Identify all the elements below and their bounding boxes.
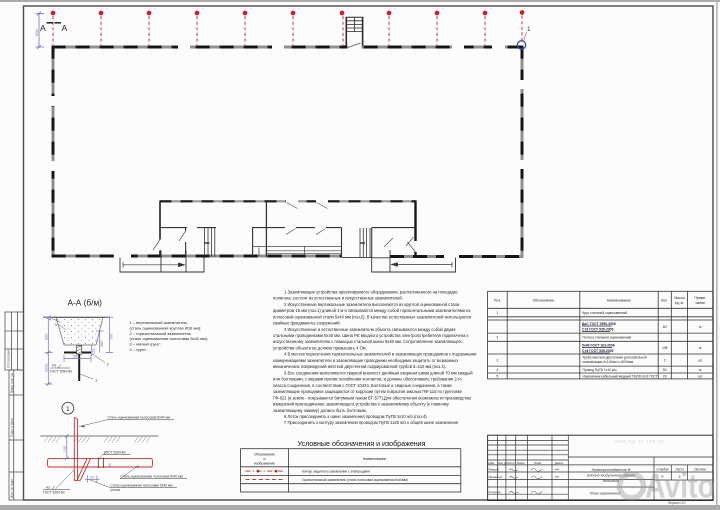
svg-text:Н.контр.: Н.контр. — [489, 490, 502, 494]
svg-text:Условные обозначения и изображ: Условные обозначения и изображения — [298, 440, 426, 448]
svg-text:50: 50 — [663, 368, 667, 372]
svg-text:Круг стальной оцинкованный: Круг стальной оцинкованный — [583, 311, 628, 315]
svg-text:3 Искусственные и естественные: 3 Искусственные и естественные заземлите… — [284, 327, 456, 332]
svg-text:700: 700 — [110, 334, 114, 340]
svg-text:Масса: Масса — [674, 296, 684, 300]
svg-text:Сталь оцинкованная полосовая 5: Сталь оцинкованная полосовая 5х40 мм — [110, 483, 173, 487]
svg-text:40: 40 — [108, 463, 112, 467]
svg-text:Разраб.: Разраб. — [489, 468, 500, 472]
svg-text:Подп. и дата: Подп. и дата — [10, 418, 14, 437]
svg-text:канализации d=110мм L=6000мм: канализации d=110мм L=6000мм — [583, 360, 634, 364]
svg-text:Н1: Н1 — [46, 485, 50, 489]
svg-text:Проверил: Проверил — [489, 475, 503, 479]
svg-text:Дата: Дата — [554, 461, 563, 465]
svg-text:Обозначение: Обозначение — [533, 298, 555, 302]
svg-text:40: 40 — [90, 476, 94, 480]
svg-text:Сталь оцинкованная полосовая 5: Сталь оцинкованная полосовая 5х40 мм — [120, 474, 183, 478]
svg-text:700: 700 — [63, 446, 67, 452]
svg-text:2 – горизонтальный заземлитель: 2 – горизонтальный заземлитель — [130, 331, 191, 336]
svg-text:заземляющие проводники защищаю: заземляющие проводники защищаются от кор… — [273, 389, 463, 394]
svg-text:Инв. № подл.: Инв. № подл. — [10, 478, 14, 498]
svg-text:Наименование: Наименование — [607, 298, 631, 302]
svg-text:5х40 ГОСТ 103-2006: 5х40 ГОСТ 103-2006 — [582, 343, 615, 347]
svg-text:диаметром 16 мм (поз.1) длиной: диаметром 16 мм (поз.1) длиной 3 м и свя… — [273, 308, 470, 313]
svg-text:7 Присоединить к контуру зазем: 7 Присоединить к контуру заземления пров… — [284, 420, 458, 425]
svg-text:А: А — [40, 23, 46, 33]
svg-text:300: 300 — [100, 341, 104, 347]
svg-text:4 В местах пересечения горизон: 4 В местах пересечения горизонтальных за… — [284, 352, 477, 357]
svg-text:№док.: №док. — [517, 461, 526, 465]
svg-text:полигона: полигона — [603, 479, 620, 483]
svg-text:ГОСТ 5264-80: ГОСТ 5264-80 — [43, 491, 65, 495]
svg-text:Электроснабжение В: Электроснабжение В — [592, 468, 631, 472]
svg-text:измерений присоединение заземл: измерений присоединение заземляющего уст… — [273, 402, 450, 407]
svg-text:устройства объекта не должно п: устройства объекта не должно превышать 4… — [273, 346, 367, 351]
svg-text:Avito: Avito — [645, 468, 715, 506]
svg-text:2: 2 — [496, 336, 498, 340]
svg-text:108: 108 — [662, 346, 668, 350]
svg-text:Провод ПуГВ 1х10 ж/з: Провод ПуГВ 1х10 ж/з — [583, 368, 617, 372]
svg-text:искусственному заземлителю с п: искусственному заземлителю с помощью ста… — [273, 339, 463, 344]
svg-text:СтЗ ГОСТ 535-2005: СтЗ ГОСТ 535-2005 — [582, 349, 614, 353]
svg-text:Сталь оцинкованная полосовая 5: Сталь оцинкованная полосовая 5х40 мм — [108, 416, 171, 420]
svg-text:Подп.: Подп. — [534, 461, 542, 465]
svg-text:Труба жесткая двустенная для к: Труба жесткая двустенная для кабельной — [583, 356, 647, 360]
svg-text:600: 600 — [34, 29, 39, 36]
svg-text:свайные фундаменты сооружений.: свайные фундаменты сооружений. — [273, 321, 341, 326]
svg-text:600: 600 — [44, 334, 48, 340]
svg-text:или болтовыми, с мерами против: или болтовыми, с мерами против ослаблени… — [273, 377, 462, 382]
svg-text:шт.: шт. — [698, 375, 703, 379]
svg-text:2: 2 — [664, 359, 666, 363]
svg-text:ЭОМ-ПД-23-145-ЭС: ЭОМ-ПД-23-145-ЭС — [614, 440, 665, 444]
svg-text:(сталь оцинкованная полосовая: (сталь оцинкованная полосовая 5х40 мм); — [130, 336, 209, 341]
svg-text:План заземления: План заземления — [590, 491, 621, 495]
svg-text:Взам. инв. №: Взам. инв. № — [10, 373, 14, 393]
svg-text:Горизонтальный заземлитель (ст: Горизонтальный заземлитель (сталь полосо… — [302, 478, 408, 482]
svg-text:150: 150 — [92, 348, 96, 354]
svg-text:полосовой оцинкованной стали 5: полосовой оцинкованной стали 5х40 мм (по… — [273, 314, 471, 319]
svg-text:5 Все соединения выполняются с: 5 Все соединения выполняются сваркой вна… — [284, 370, 473, 375]
svg-text:60: 60 — [663, 325, 667, 329]
svg-text:Изм.: Изм. — [489, 461, 496, 465]
svg-text:3 – мягкий грунт;: 3 – мягкий грунт; — [130, 342, 161, 347]
svg-text:2 Искусственные вертикальные з: 2 Искусственные вертикальные заземлители… — [284, 302, 460, 307]
svg-text:Контур защитного заземления с: Контур защитного заземления с электродам… — [302, 470, 370, 474]
svg-text:шт.: шт. — [698, 359, 703, 363]
svg-text:(сталь оцинкованная круглая Ø1: (сталь оцинкованная круглая Ø16 мм); — [130, 325, 202, 330]
svg-text:1: 1 — [527, 26, 531, 33]
svg-text:4 – грунт.: 4 – грунт. — [130, 347, 147, 352]
svg-text:3: 3 — [496, 359, 498, 363]
svg-text:механических повреждений жёстк: механических повреждений жёсткой двустен… — [273, 364, 446, 369]
svg-text:ГОСТ 5264-80: ГОСТ 5264-80 — [104, 451, 126, 455]
svg-text:коммуникациями заземлители и з: коммуникациями заземлители и заземляющие… — [273, 358, 459, 363]
svg-text:Поз.: Поз. — [494, 298, 501, 302]
svg-text:класса соединения, в соответст: класса соединения, в соответствии с ГОСТ… — [273, 383, 452, 388]
svg-text:6 Лоток присоединить к шине за: 6 Лоток присоединить к шине заземления п… — [284, 414, 428, 419]
svg-text:1: 1 — [66, 406, 70, 413]
svg-text:изображение: изображение — [254, 461, 275, 465]
svg-text:А-А (б/м): А-А (б/м) — [68, 298, 103, 308]
svg-text:1: 1 — [496, 311, 498, 315]
svg-text:уголок: уголок — [110, 488, 120, 492]
svg-text:СтЗ ГОСТ 535-2005: СтЗ ГОСТ 535-2005 — [582, 328, 614, 332]
svg-text:ДхС ГОСТ 2590-2006: ДхС ГОСТ 2590-2006 — [582, 322, 616, 326]
svg-text:20: 20 — [663, 375, 667, 379]
svg-text:Приме-: Приме- — [694, 296, 707, 300]
svg-text:Лист: Лист — [506, 461, 515, 465]
svg-text:чание: чание — [695, 301, 705, 305]
svg-text:5: 5 — [496, 375, 498, 379]
svg-text:Согласовано: Согласовано — [7, 349, 11, 368]
svg-text:4: 4 — [496, 368, 498, 372]
svg-text:1 Заземляющие устройства проек: 1 Заземляющие устройства проектируемого … — [284, 289, 458, 294]
svg-text:и: и — [264, 457, 266, 461]
svg-text:Наконечник кабельный медный ТМ: Наконечник кабельный медный ТМЛ10-6-6 ГО… — [583, 374, 658, 378]
svg-text:А: А — [62, 23, 68, 33]
svg-text:3000: 3000 — [44, 364, 48, 372]
svg-text:500: 500 — [73, 355, 79, 359]
svg-text:Н1: Н1 — [52, 364, 56, 368]
svg-text:ГОСТ 5264-80: ГОСТ 5264-80 — [50, 369, 72, 373]
svg-text:заземляющему зажиму) должно бы: заземляющему зажиму) должно быть болтовы… — [273, 408, 367, 413]
svg-text:Наименование: Наименование — [363, 457, 387, 461]
svg-text:Обозначение: Обозначение — [254, 453, 275, 457]
svg-text:Кол.: Кол. — [661, 298, 668, 302]
svg-text:1 – вертикальный заземлитель: 1 – вертикальный заземлитель — [130, 320, 188, 325]
svg-text:стальными проводниками 5х40 мм: стальными проводниками 5х40 мм. Шина РЕ … — [273, 333, 469, 338]
svg-text:ед, кг.: ед, кг. — [675, 301, 684, 305]
svg-text:полигона, состоят из естествен: полигона, состоят из естественных и иску… — [273, 296, 403, 301]
svg-text:ГФ-021 (в земле - покрываются: ГФ-021 (в земле - покрываются битумным л… — [273, 395, 472, 400]
svg-text:Полоса стальная оцинкованная: Полоса стальная оцинкованная — [583, 336, 632, 340]
